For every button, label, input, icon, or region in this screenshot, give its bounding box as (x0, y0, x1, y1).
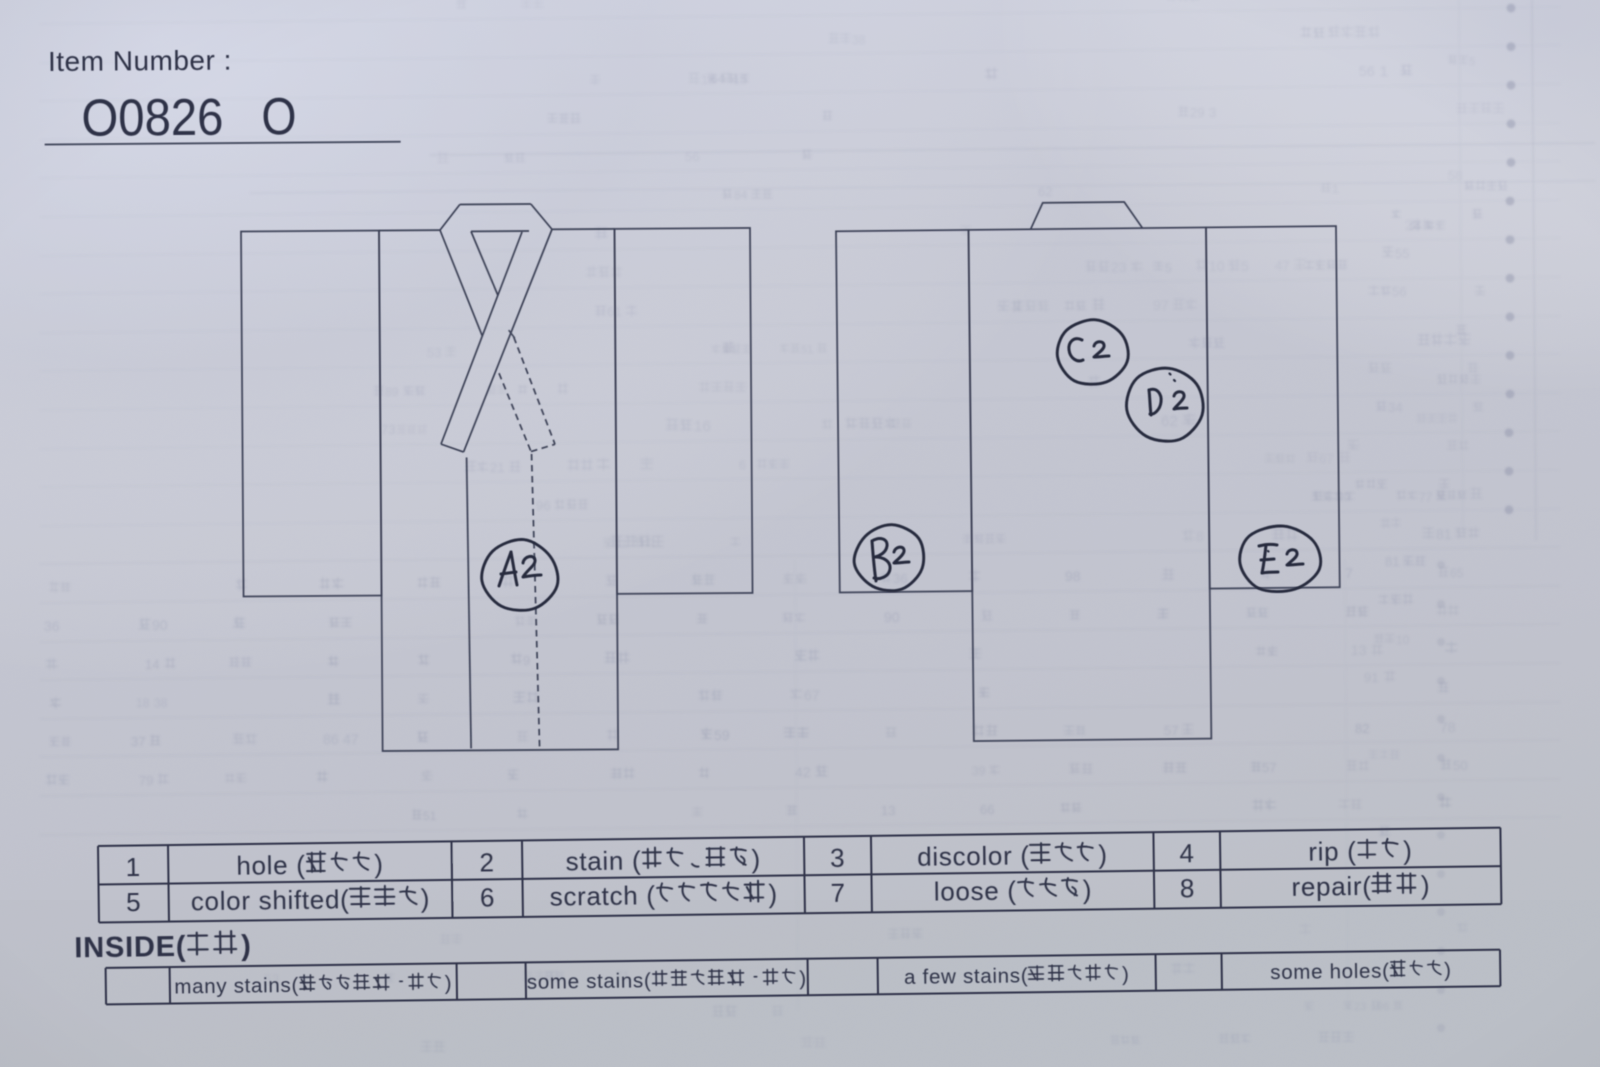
svg-text:53: 53 (427, 345, 441, 360)
svg-text:36: 36 (44, 618, 60, 634)
svg-text:16: 16 (694, 418, 711, 435)
svg-text:10: 10 (1209, 258, 1225, 274)
svg-text:47: 47 (343, 731, 359, 747)
svg-text:1: 1 (1380, 63, 1388, 79)
svg-text:loose (: loose ( (934, 875, 1017, 906)
svg-text:): ) (1421, 870, 1431, 900)
svg-text:): ) (1403, 835, 1413, 865)
svg-text:): ) (1083, 874, 1093, 904)
svg-text:): ) (1444, 959, 1452, 982)
svg-text:): ) (374, 849, 384, 879)
svg-text:73: 73 (381, 422, 395, 437)
svg-text:9: 9 (523, 653, 530, 668)
svg-text:18: 18 (136, 696, 150, 710)
svg-text:81: 81 (1436, 526, 1452, 542)
svg-text:scratch (: scratch ( (550, 880, 656, 911)
svg-text:42: 42 (795, 764, 811, 780)
svg-text:14: 14 (1408, 221, 1420, 233)
svg-text:5: 5 (1165, 261, 1172, 275)
svg-text:34: 34 (1388, 400, 1402, 415)
svg-text:97: 97 (1153, 297, 1169, 313)
svg-text:15: 15 (733, 72, 747, 87)
svg-text:36: 36 (893, 571, 907, 586)
svg-text:89: 89 (385, 385, 399, 399)
svg-text:Item Number :: Item Number : (48, 45, 232, 77)
svg-text:90: 90 (884, 609, 900, 625)
svg-text:67: 67 (1319, 451, 1333, 466)
svg-text:O: O (261, 88, 296, 146)
svg-text:51: 51 (423, 809, 437, 823)
svg-text:91: 91 (1364, 670, 1378, 685)
svg-text:90: 90 (152, 617, 168, 633)
svg-text:47: 47 (1275, 258, 1289, 273)
svg-text:62: 62 (1161, 413, 1178, 430)
svg-text:many stains(: many stains( (174, 974, 299, 999)
svg-text:O0826: O0826 (81, 89, 223, 148)
svg-text:55: 55 (1395, 246, 1409, 261)
svg-text:23: 23 (1111, 259, 1127, 275)
svg-text:38: 38 (852, 33, 866, 47)
svg-text:some stains(: some stains( (527, 969, 652, 994)
svg-text:some holes(: some holes( (1270, 960, 1390, 985)
svg-text:8: 8 (1180, 873, 1196, 903)
svg-text:a few stains(: a few stains( (904, 964, 1028, 989)
svg-text:13: 13 (881, 803, 895, 818)
svg-text:): ) (768, 879, 778, 909)
svg-text:7: 7 (1345, 565, 1353, 581)
svg-text:29: 29 (1190, 105, 1204, 120)
svg-text:4: 4 (1179, 838, 1195, 868)
svg-text:59: 59 (714, 727, 730, 743)
svg-text:81: 81 (1385, 554, 1399, 569)
svg-text:57: 57 (1262, 760, 1276, 775)
svg-text:51: 51 (801, 344, 813, 356)
svg-text:discolor (: discolor ( (917, 840, 1030, 871)
svg-text:65: 65 (1450, 566, 1464, 580)
svg-text:82: 82 (1355, 721, 1369, 736)
svg-text:57: 57 (1164, 723, 1178, 738)
svg-text:color shifted(: color shifted( (191, 884, 350, 916)
svg-text:79: 79 (139, 773, 153, 788)
svg-text:39: 39 (972, 764, 986, 778)
svg-text:INSIDE(: INSIDE( (74, 931, 186, 964)
svg-text:5: 5 (1469, 56, 1475, 68)
svg-text:84: 84 (734, 188, 748, 202)
svg-text:3: 3 (1209, 105, 1216, 120)
svg-text:): ) (445, 972, 453, 995)
svg-text:10: 10 (1396, 633, 1410, 647)
svg-text:98: 98 (1065, 568, 1081, 584)
svg-text:): ) (751, 844, 761, 874)
svg-text:66: 66 (980, 802, 994, 817)
svg-text:56: 56 (685, 149, 699, 164)
svg-text:5: 5 (126, 887, 142, 917)
svg-text:2: 2 (479, 847, 495, 877)
svg-text:1: 1 (125, 852, 141, 882)
svg-text:96: 96 (1377, 1001, 1389, 1013)
svg-text:): ) (1122, 963, 1130, 986)
svg-text:repair(: repair( (1291, 871, 1371, 902)
svg-text:): ) (241, 930, 252, 962)
svg-text:1: 1 (1332, 182, 1339, 196)
svg-text:6: 6 (739, 458, 746, 472)
svg-text:6: 6 (480, 882, 496, 912)
svg-text:8: 8 (1196, 528, 1204, 544)
svg-text:14: 14 (145, 657, 159, 672)
svg-text:rip (: rip ( (1308, 836, 1357, 867)
svg-text:96: 96 (536, 498, 550, 513)
svg-text:5: 5 (1241, 258, 1249, 274)
svg-text:): ) (1098, 839, 1108, 869)
svg-text:hole (: hole ( (236, 850, 306, 881)
svg-text:38: 38 (154, 696, 168, 710)
svg-text:50: 50 (1453, 758, 1467, 773)
svg-text:67: 67 (804, 687, 820, 703)
svg-text:56: 56 (1392, 284, 1406, 299)
svg-text:23: 23 (1354, 1001, 1366, 1013)
svg-text:): ) (421, 883, 431, 913)
svg-text:stain (: stain ( (565, 845, 641, 876)
svg-text:37: 37 (131, 734, 145, 749)
svg-text:86: 86 (323, 731, 339, 747)
svg-text:): ) (799, 967, 807, 990)
svg-text:3: 3 (830, 843, 846, 873)
svg-text:77: 77 (1419, 490, 1433, 504)
svg-text:56: 56 (1359, 63, 1375, 79)
svg-text:7: 7 (830, 878, 846, 908)
svg-text:13: 13 (1351, 642, 1367, 658)
svg-text:21: 21 (490, 460, 504, 475)
